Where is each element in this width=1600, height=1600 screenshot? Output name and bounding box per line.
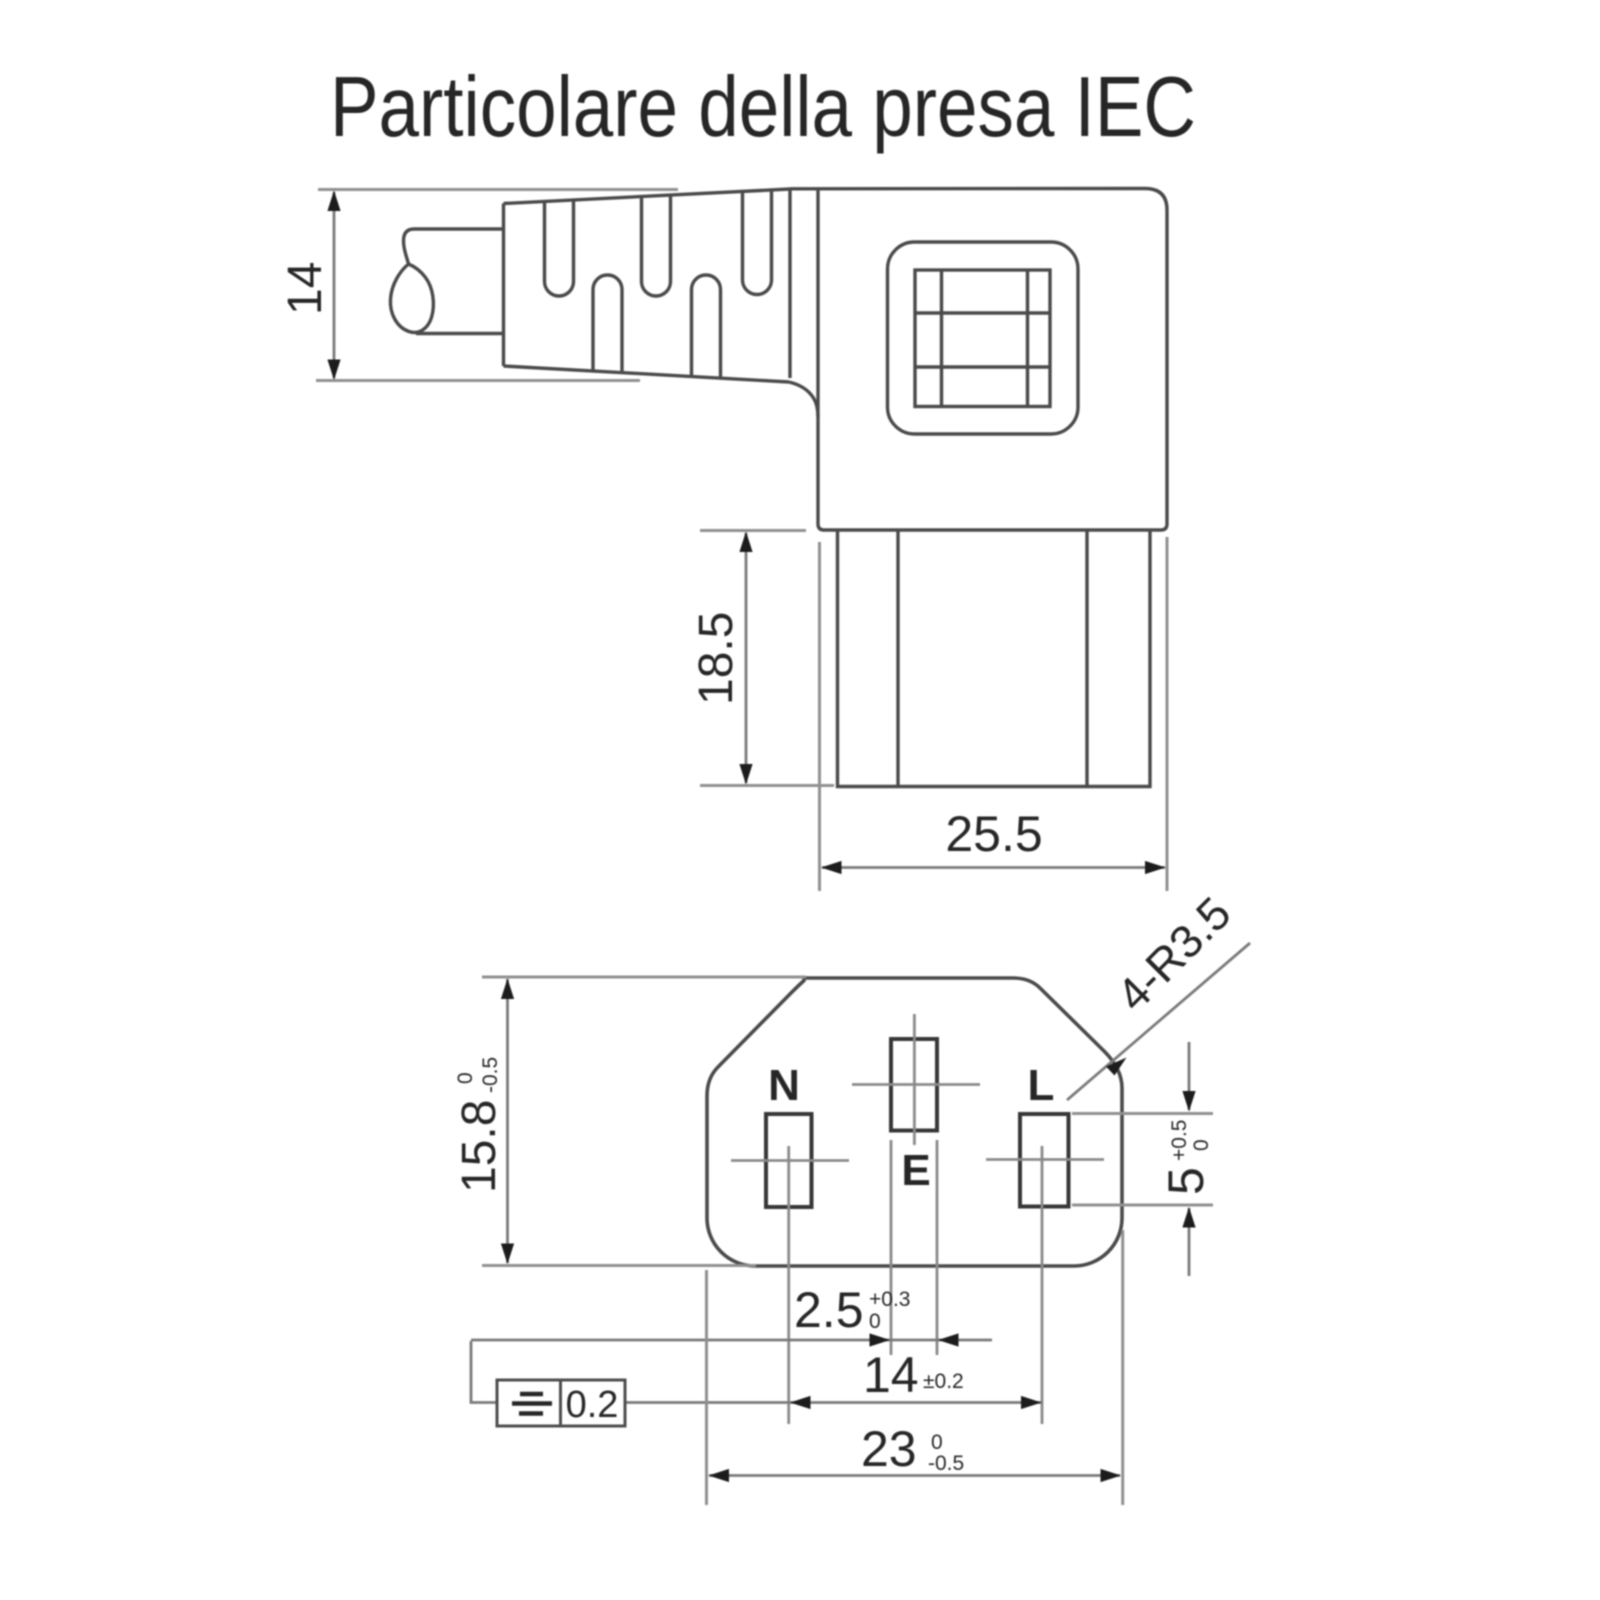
svg-text:-0.5: -0.5	[928, 1452, 964, 1475]
svg-text:18.5: 18.5	[690, 612, 743, 705]
svg-text:2.5: 2.5	[794, 1282, 864, 1338]
svg-text:15.8: 15.8	[453, 1100, 506, 1193]
svg-text:0: 0	[931, 1431, 943, 1454]
svg-text:0.2: 0.2	[566, 1384, 619, 1426]
svg-text:23: 23	[861, 1421, 917, 1477]
svg-text:0: 0	[454, 1072, 477, 1084]
svg-text:5: 5	[1158, 1167, 1214, 1195]
svg-text:L: L	[1028, 1061, 1055, 1110]
svg-text:+0.5: +0.5	[1168, 1120, 1191, 1161]
svg-text:0: 0	[869, 1310, 881, 1333]
svg-text:25.5: 25.5	[945, 806, 1042, 862]
svg-text:+0.3: +0.3	[869, 1288, 910, 1311]
svg-text:14: 14	[279, 262, 332, 315]
svg-text:-0.5: -0.5	[479, 1057, 502, 1093]
svg-text:N: N	[768, 1061, 800, 1110]
svg-text:E: E	[901, 1146, 930, 1195]
svg-text:Particolare della presa IEC: Particolare della presa IEC	[330, 60, 1196, 155]
svg-text:4-R3.5: 4-R3.5	[1106, 887, 1240, 1021]
svg-text:0: 0	[1190, 1139, 1213, 1151]
svg-text:±0.2: ±0.2	[923, 1370, 964, 1393]
svg-text:14: 14	[863, 1347, 919, 1403]
